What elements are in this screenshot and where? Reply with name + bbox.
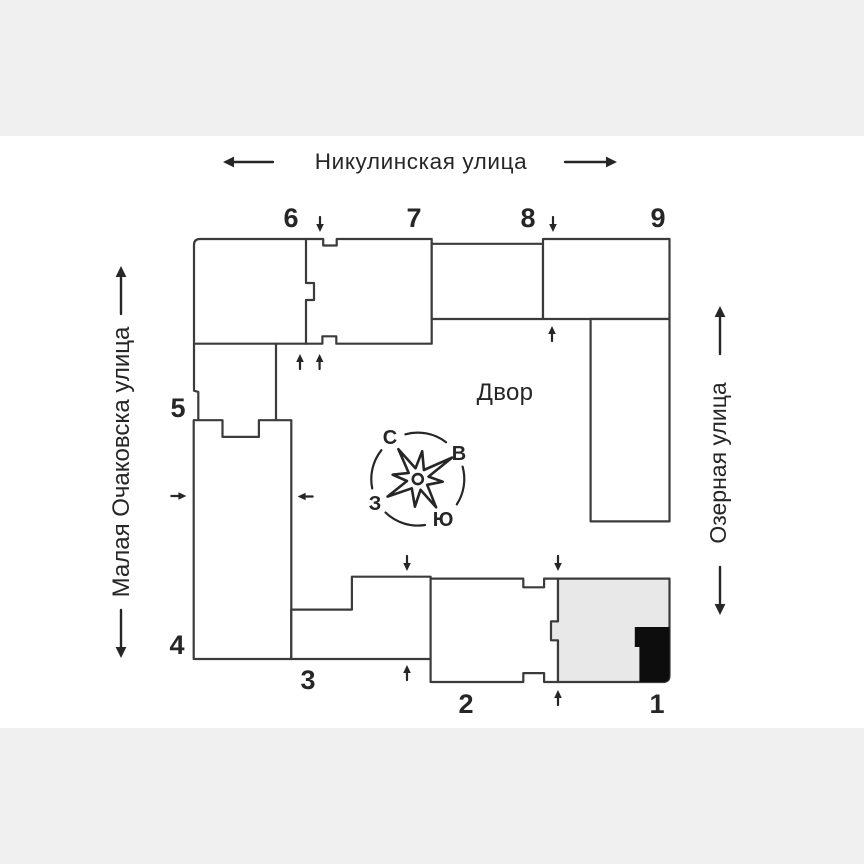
svg-text:1: 1 (649, 689, 664, 719)
svg-text:8: 8 (520, 203, 535, 233)
svg-text:3: 3 (300, 665, 315, 695)
svg-text:Ю: Ю (433, 509, 454, 531)
svg-text:С: С (383, 427, 397, 449)
svg-text:В: В (452, 443, 466, 465)
svg-text:2: 2 (458, 689, 473, 719)
svg-text:5: 5 (170, 393, 185, 423)
svg-text:Никулинская улица: Никулинская улица (315, 149, 527, 174)
svg-text:4: 4 (169, 630, 184, 660)
svg-text:Озерная улица: Озерная улица (705, 382, 731, 544)
svg-text:6: 6 (283, 203, 298, 233)
svg-text:9: 9 (650, 203, 665, 233)
svg-text:7: 7 (406, 203, 421, 233)
svg-text:Малая Очаковска улица: Малая Очаковска улица (108, 326, 135, 597)
svg-text:З: З (369, 493, 382, 515)
svg-text:Двор: Двор (477, 379, 534, 406)
